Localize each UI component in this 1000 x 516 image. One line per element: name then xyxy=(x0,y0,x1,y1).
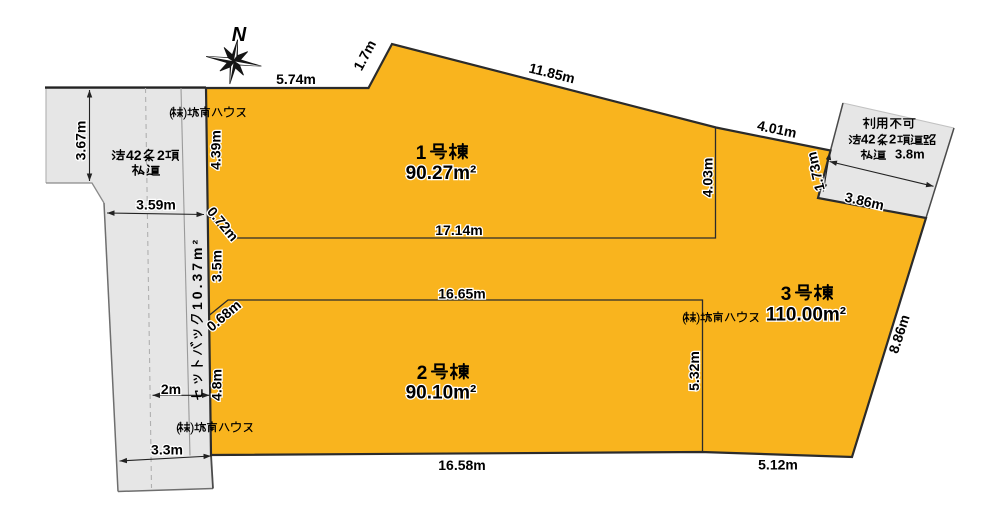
svg-text:3.8m: 3.8m xyxy=(895,147,925,162)
svg-text:5.12m: 5.12m xyxy=(758,457,798,473)
svg-text:2: 2 xyxy=(417,363,428,384)
svg-text:3.5m: 3.5m xyxy=(209,250,225,282)
svg-text:5.32m: 5.32m xyxy=(686,351,702,391)
svg-text:42: 42 xyxy=(861,132,875,147)
svg-text:2: 2 xyxy=(889,132,896,147)
svg-text:): ) xyxy=(183,105,187,120)
svg-text:3.3m: 3.3m xyxy=(151,442,183,458)
svg-text:90.10m²: 90.10m² xyxy=(406,383,477,404)
svg-text:4.03m: 4.03m xyxy=(700,158,716,198)
svg-text:2m: 2m xyxy=(161,381,181,397)
svg-text:110.00m²: 110.00m² xyxy=(766,305,846,326)
svg-text:16.65m: 16.65m xyxy=(438,286,485,302)
svg-text:4.8m: 4.8m xyxy=(209,369,225,401)
svg-text:17.14m: 17.14m xyxy=(435,222,482,238)
svg-text:N: N xyxy=(232,24,247,46)
svg-text:90.27m²: 90.27m² xyxy=(406,163,477,184)
svg-text:5.74m: 5.74m xyxy=(276,71,316,87)
svg-text:42: 42 xyxy=(126,147,142,163)
svg-text:): ) xyxy=(190,420,194,435)
svg-text:1: 1 xyxy=(416,143,427,164)
svg-text:2: 2 xyxy=(157,147,165,163)
svg-text:4.39m: 4.39m xyxy=(208,130,224,170)
svg-text:16.58m: 16.58m xyxy=(438,457,485,473)
svg-text:3.59m: 3.59m xyxy=(136,197,176,213)
svg-text:): ) xyxy=(696,310,700,325)
svg-text:10.37m²: 10.37m² xyxy=(189,237,205,310)
svg-text:3: 3 xyxy=(781,284,792,305)
svg-text:3.67m: 3.67m xyxy=(73,121,89,161)
